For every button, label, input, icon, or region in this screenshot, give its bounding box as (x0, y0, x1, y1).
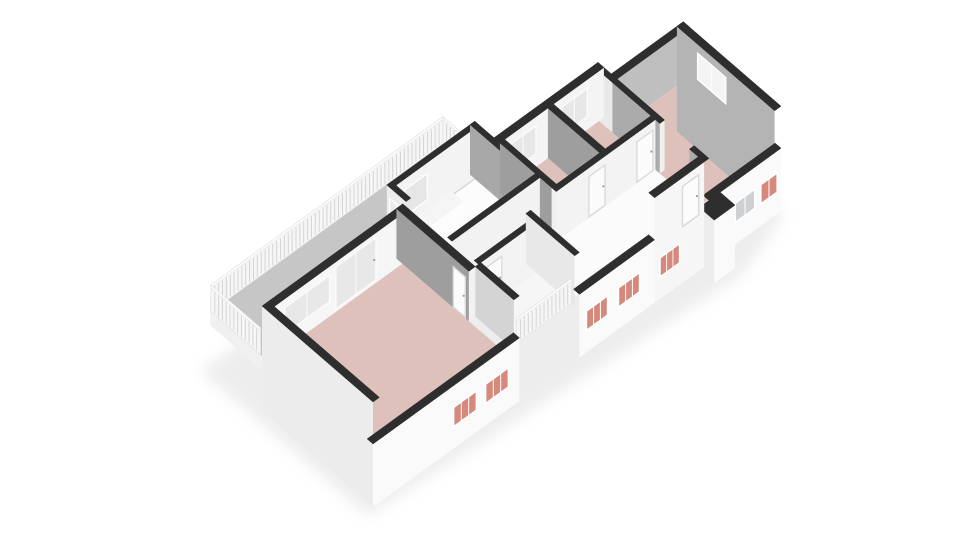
floorplan-3d-view (0, 0, 960, 540)
floorplan-canvas (0, 0, 960, 540)
floorplan-scene (201, 22, 784, 516)
facade-protrusion (699, 192, 735, 283)
